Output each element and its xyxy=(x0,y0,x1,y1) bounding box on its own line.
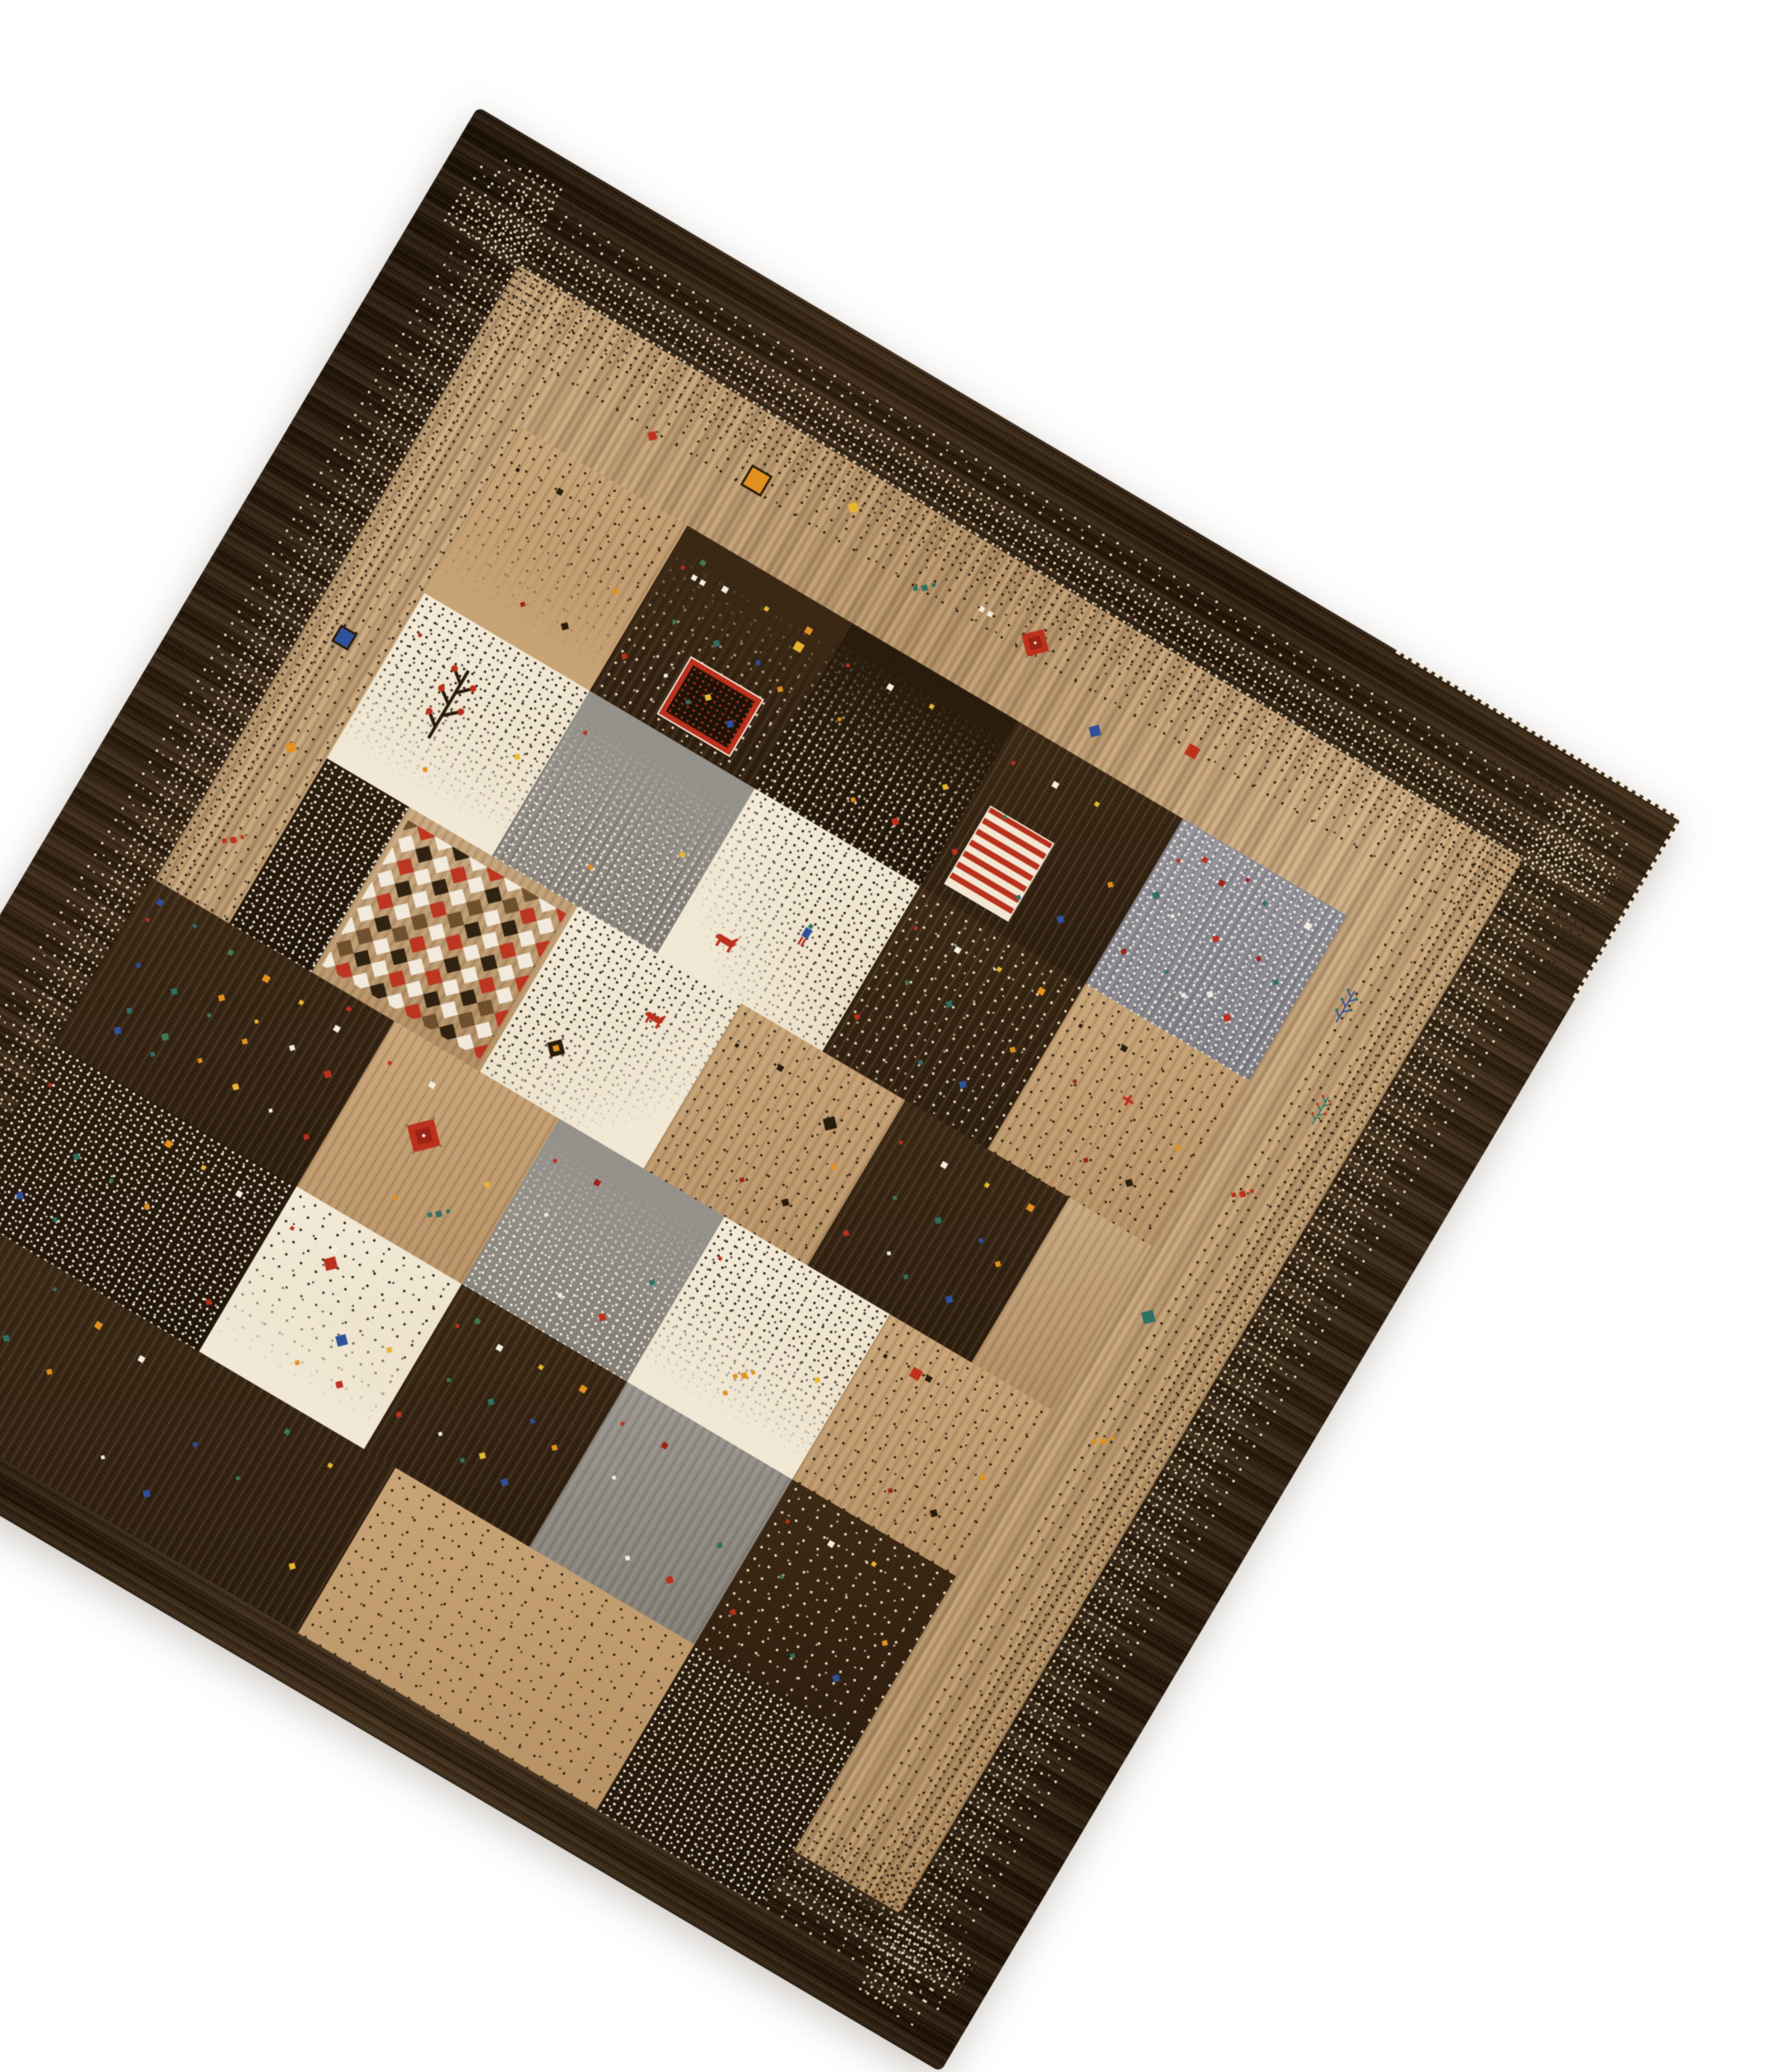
sprig-dot xyxy=(435,1210,443,1218)
checker-cell xyxy=(498,965,515,982)
checker-cell xyxy=(376,893,393,910)
checker-cell xyxy=(337,939,354,956)
checker-cell xyxy=(395,880,412,897)
checker-cell xyxy=(392,925,409,942)
checker-cell xyxy=(499,942,516,959)
sprig-dot xyxy=(732,1373,738,1378)
checker-cell xyxy=(423,991,441,1008)
checker-cell xyxy=(447,911,464,928)
sprig-dot xyxy=(240,835,245,839)
checker-cell xyxy=(463,944,480,961)
checker-cell xyxy=(479,977,496,994)
sprig-dot xyxy=(230,836,237,844)
sprig-dot xyxy=(921,584,928,591)
sprig-dot xyxy=(931,582,936,587)
checker-cell xyxy=(443,979,460,996)
checker-cell xyxy=(405,980,423,998)
checker-cell xyxy=(458,1012,475,1029)
checker-cell xyxy=(441,1001,458,1018)
checker-cell xyxy=(354,950,371,967)
checker-cell xyxy=(485,887,502,904)
checker-cell xyxy=(444,956,461,974)
checker-cell xyxy=(411,913,428,930)
sprig-dot xyxy=(1110,1436,1115,1440)
checker-cell xyxy=(516,952,533,969)
sprig-dot xyxy=(1092,1440,1097,1445)
checker-cell xyxy=(449,889,466,906)
checker-cell xyxy=(355,927,373,945)
checker-cell xyxy=(466,899,483,916)
checker-cell xyxy=(373,938,391,955)
checker-cell xyxy=(477,999,494,1016)
checker-cell xyxy=(537,918,554,935)
checker-cell xyxy=(482,932,499,949)
checker-cell xyxy=(450,866,467,883)
sprig-dot xyxy=(1231,1192,1236,1198)
checker-cell xyxy=(398,836,415,853)
checker-cell xyxy=(357,905,374,922)
checker-cell xyxy=(415,846,432,863)
checker-cell xyxy=(374,915,391,933)
sprig-dot xyxy=(741,1372,748,1379)
checker-cell xyxy=(461,966,478,983)
checker-cell xyxy=(464,921,482,939)
checker-cell xyxy=(502,897,519,914)
checker-cell xyxy=(467,877,485,894)
checker-cell xyxy=(414,868,432,886)
checker-cell xyxy=(371,960,388,977)
checker-cell xyxy=(446,934,463,951)
sprig-dot xyxy=(1239,1190,1246,1198)
checker-cell xyxy=(429,901,447,918)
sprig-dot xyxy=(1249,1189,1254,1193)
checker-cell xyxy=(496,987,513,1004)
sprig-dot xyxy=(427,1212,432,1217)
sprig-dot xyxy=(222,838,227,843)
rug xyxy=(0,107,1681,2072)
checker-cell xyxy=(484,909,501,927)
sprig-dot xyxy=(446,1209,450,1213)
checker-cell xyxy=(409,936,426,953)
checker-cell xyxy=(426,946,444,963)
checker-cell xyxy=(429,924,446,941)
checker-cell xyxy=(518,930,535,947)
checker-cell xyxy=(475,1021,492,1039)
motif-diamond-center xyxy=(553,1045,560,1052)
checker-cell xyxy=(391,948,408,965)
sprig-dot xyxy=(913,586,918,591)
checker-cell xyxy=(388,971,405,988)
checker-cell xyxy=(432,879,449,896)
checker-cell xyxy=(480,954,497,971)
checker-cell xyxy=(396,858,414,875)
checker-cell xyxy=(432,856,449,873)
checker-cell xyxy=(501,920,518,937)
checker-cell xyxy=(460,989,477,1007)
checker-cell xyxy=(520,907,537,924)
sprig-dot xyxy=(1100,1438,1107,1446)
checker-cell xyxy=(393,903,411,920)
checker-cell xyxy=(412,891,429,908)
checker-cell xyxy=(408,958,425,975)
checker-cell xyxy=(378,870,395,887)
photo-canvas xyxy=(0,0,1792,1195)
sprig-dot xyxy=(751,1370,756,1375)
checker-cell xyxy=(425,968,442,986)
